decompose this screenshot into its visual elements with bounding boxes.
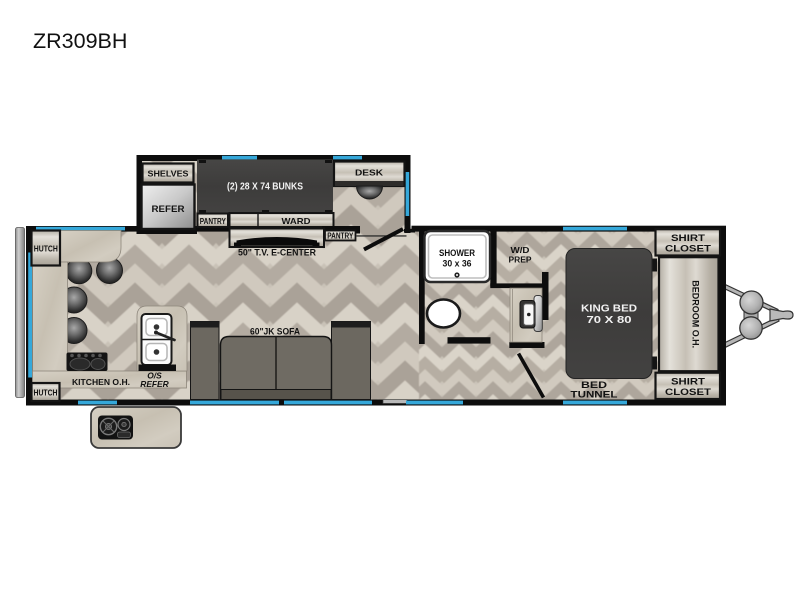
svg-text:DESK: DESK [355, 169, 383, 178]
svg-text:CLOSET: CLOSET [665, 244, 712, 254]
svg-text:HUTCH: HUTCH [34, 389, 58, 398]
svg-text:PANTRY: PANTRY [200, 217, 227, 226]
svg-text:W/D: W/D [511, 245, 530, 255]
svg-text:PANTRY: PANTRY [327, 232, 354, 241]
svg-text:BEDROOM O.H.: BEDROOM O.H. [691, 280, 701, 348]
svg-text:SHIRT: SHIRT [671, 233, 706, 243]
svg-text:ZR309BH: ZR309BH [33, 29, 127, 53]
svg-text:BED: BED [581, 380, 607, 390]
svg-text:SHOWER: SHOWER [439, 248, 476, 258]
svg-text:CLOSET: CLOSET [665, 387, 712, 397]
svg-text:REFER: REFER [152, 204, 186, 214]
svg-text:30 x 36: 30 x 36 [443, 259, 472, 269]
svg-text:HUTCH: HUTCH [34, 245, 58, 254]
svg-text:SHELVES: SHELVES [148, 169, 189, 179]
svg-text:KITCHEN O.H.: KITCHEN O.H. [72, 377, 130, 387]
svg-text:WARD: WARD [282, 216, 311, 226]
svg-text:70 X 80: 70 X 80 [587, 315, 633, 326]
svg-text:(2) 28 X 74 BUNKS: (2) 28 X 74 BUNKS [227, 182, 303, 193]
svg-text:60"JK SOFA: 60"JK SOFA [250, 327, 301, 337]
svg-text:KING BED: KING BED [581, 304, 637, 315]
svg-text:TUNNEL: TUNNEL [571, 390, 619, 400]
svg-text:SHIRT: SHIRT [671, 377, 706, 387]
svg-text:50" T.V. E-CENTER: 50" T.V. E-CENTER [238, 248, 317, 258]
svg-text:PREP: PREP [509, 255, 532, 265]
svg-text:REFER: REFER [140, 379, 168, 389]
